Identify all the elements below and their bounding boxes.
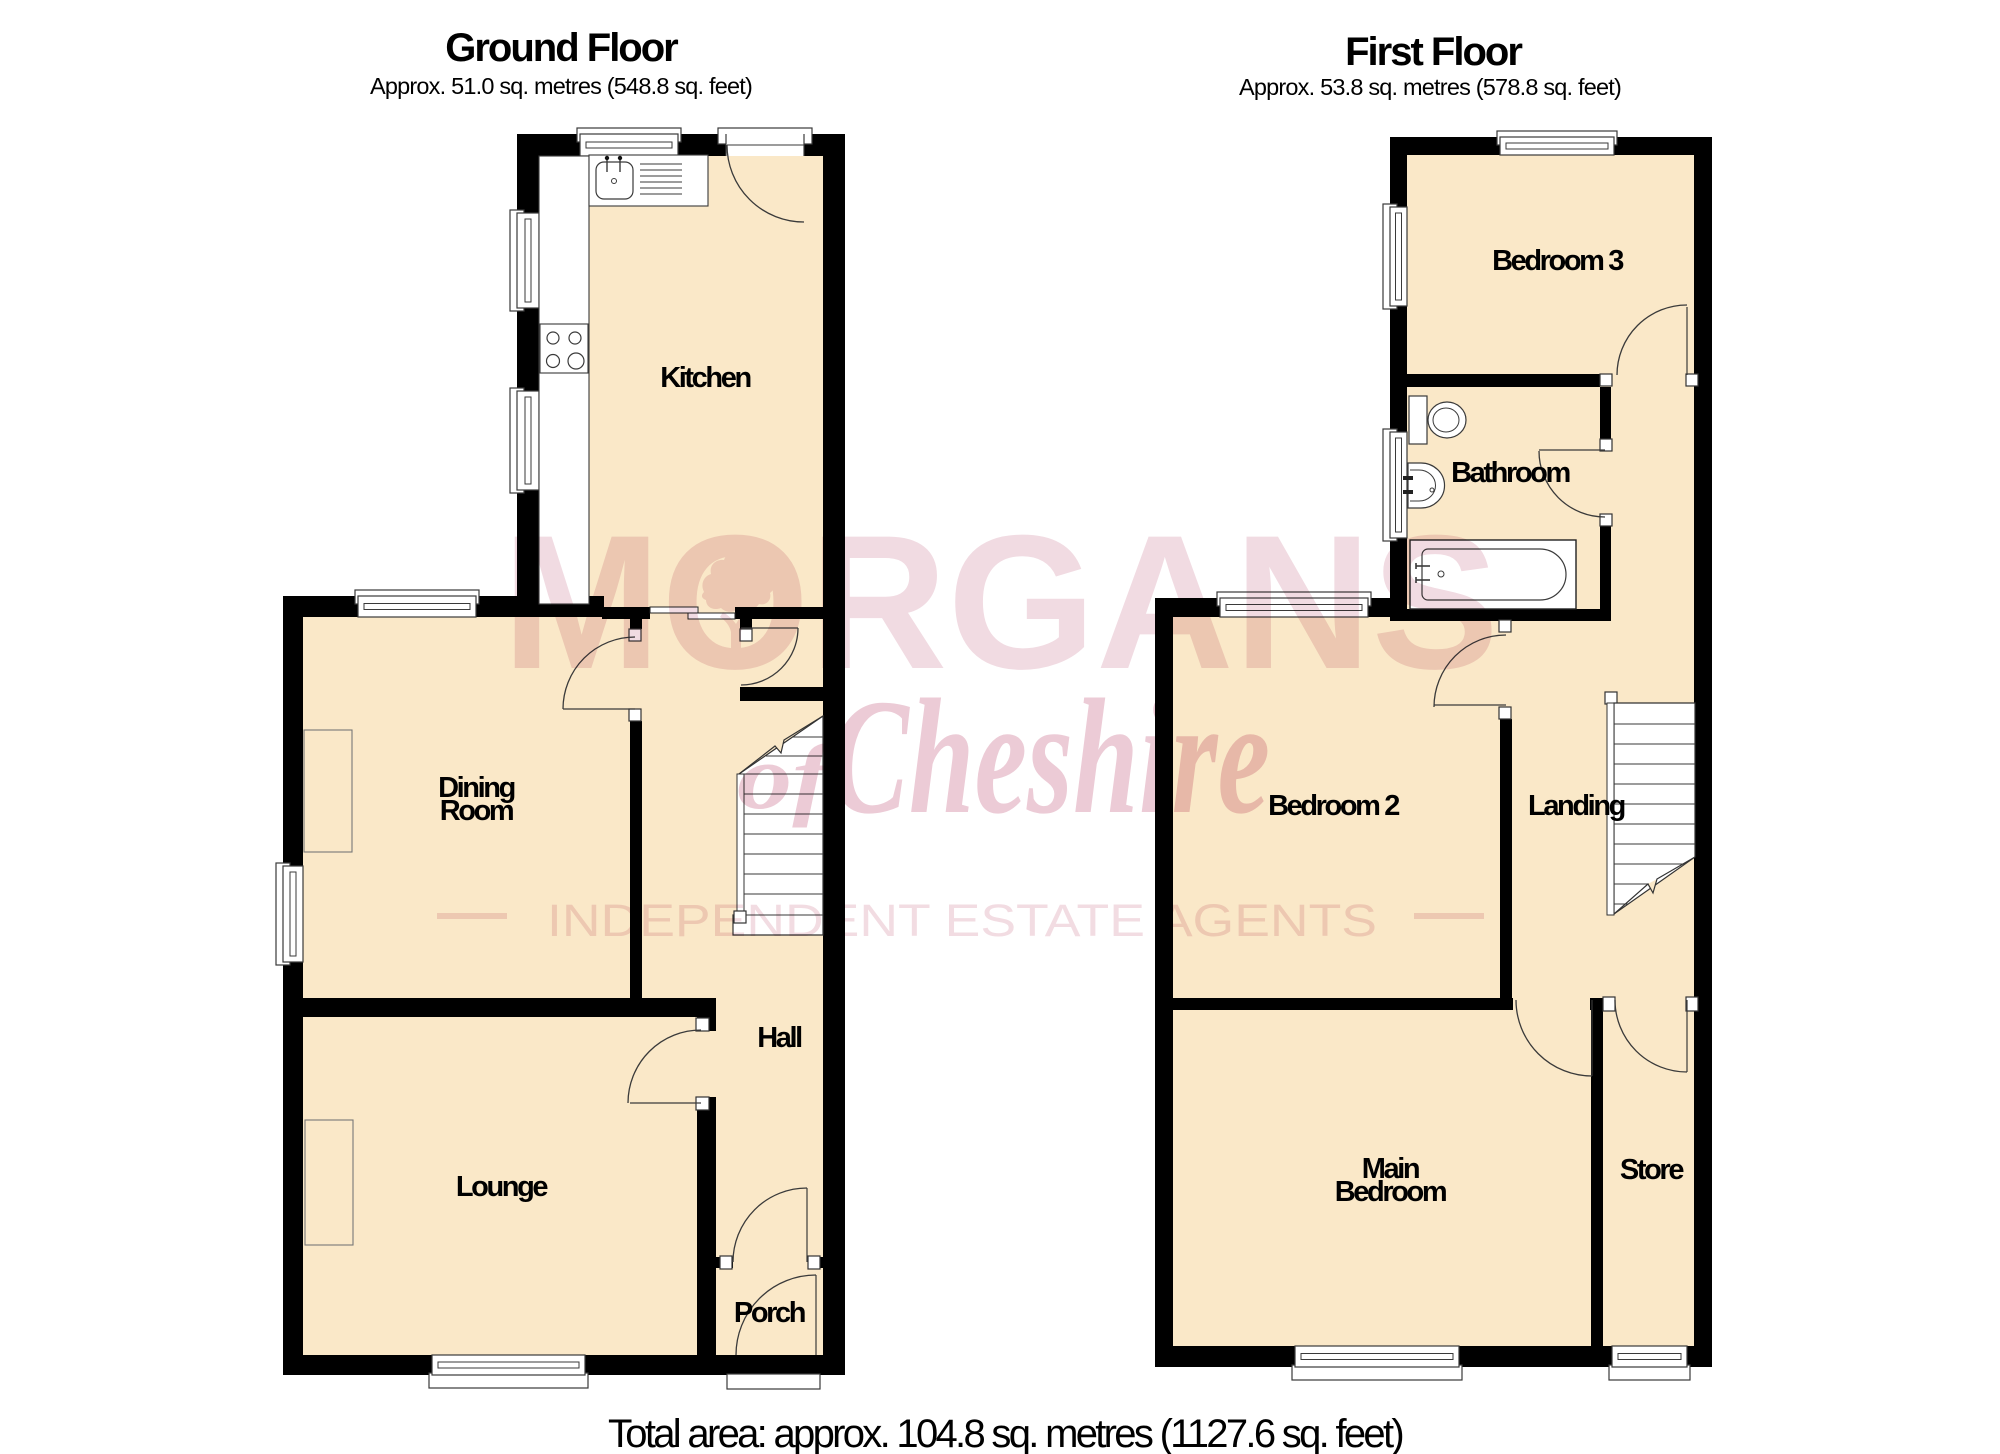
svg-text:INDEPENDENT ESTATE AGENTS: INDEPENDENT ESTATE AGENTS <box>547 895 1377 946</box>
svg-text:of: of <box>737 726 839 828</box>
svg-text:Cheshire: Cheshire <box>830 665 1270 848</box>
